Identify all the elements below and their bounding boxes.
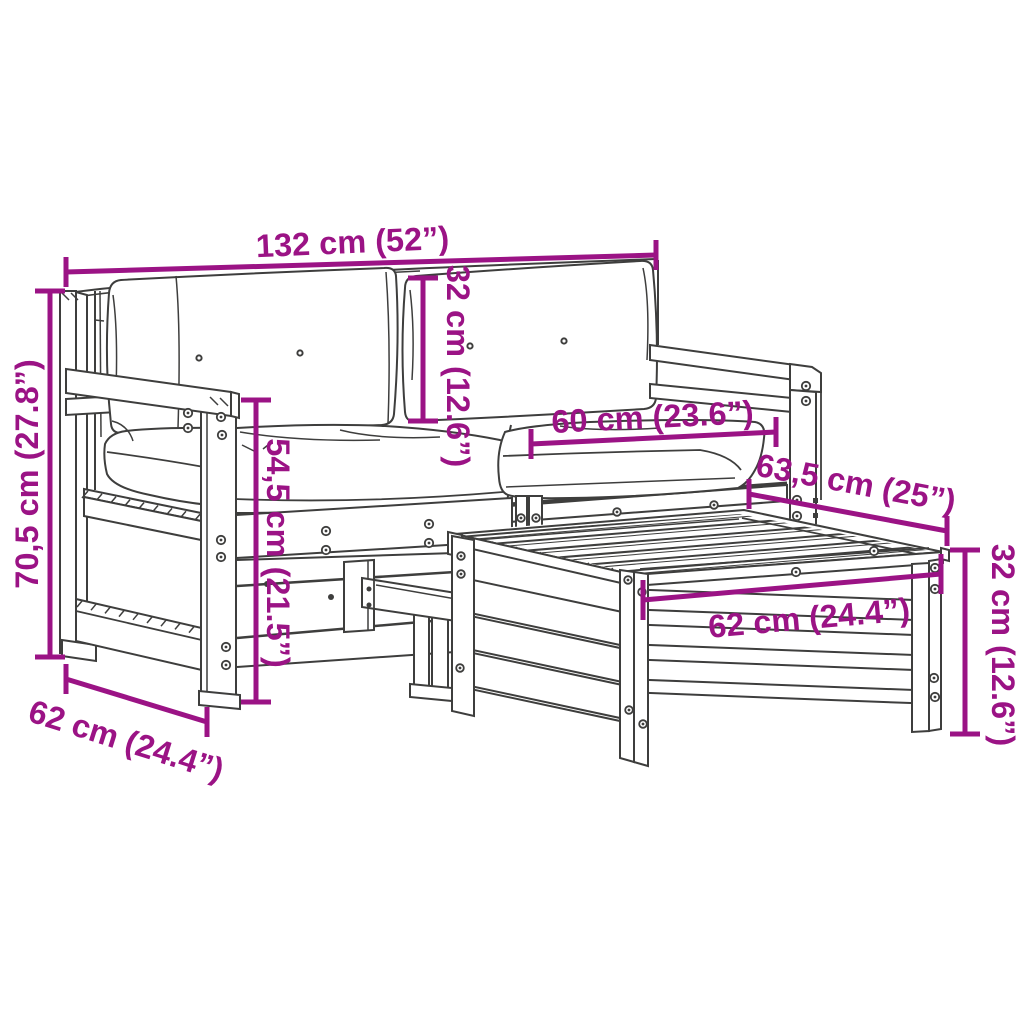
svg-text:32 cm (12.6”): 32 cm (12.6”): [985, 544, 1021, 746]
svg-text:54,5 cm (21.5”): 54,5 cm (21.5”): [260, 438, 296, 667]
svg-text:70,5 cm (27.8”): 70,5 cm (27.8”): [9, 359, 45, 588]
svg-text:32 cm (12.6”): 32 cm (12.6”): [440, 265, 476, 467]
